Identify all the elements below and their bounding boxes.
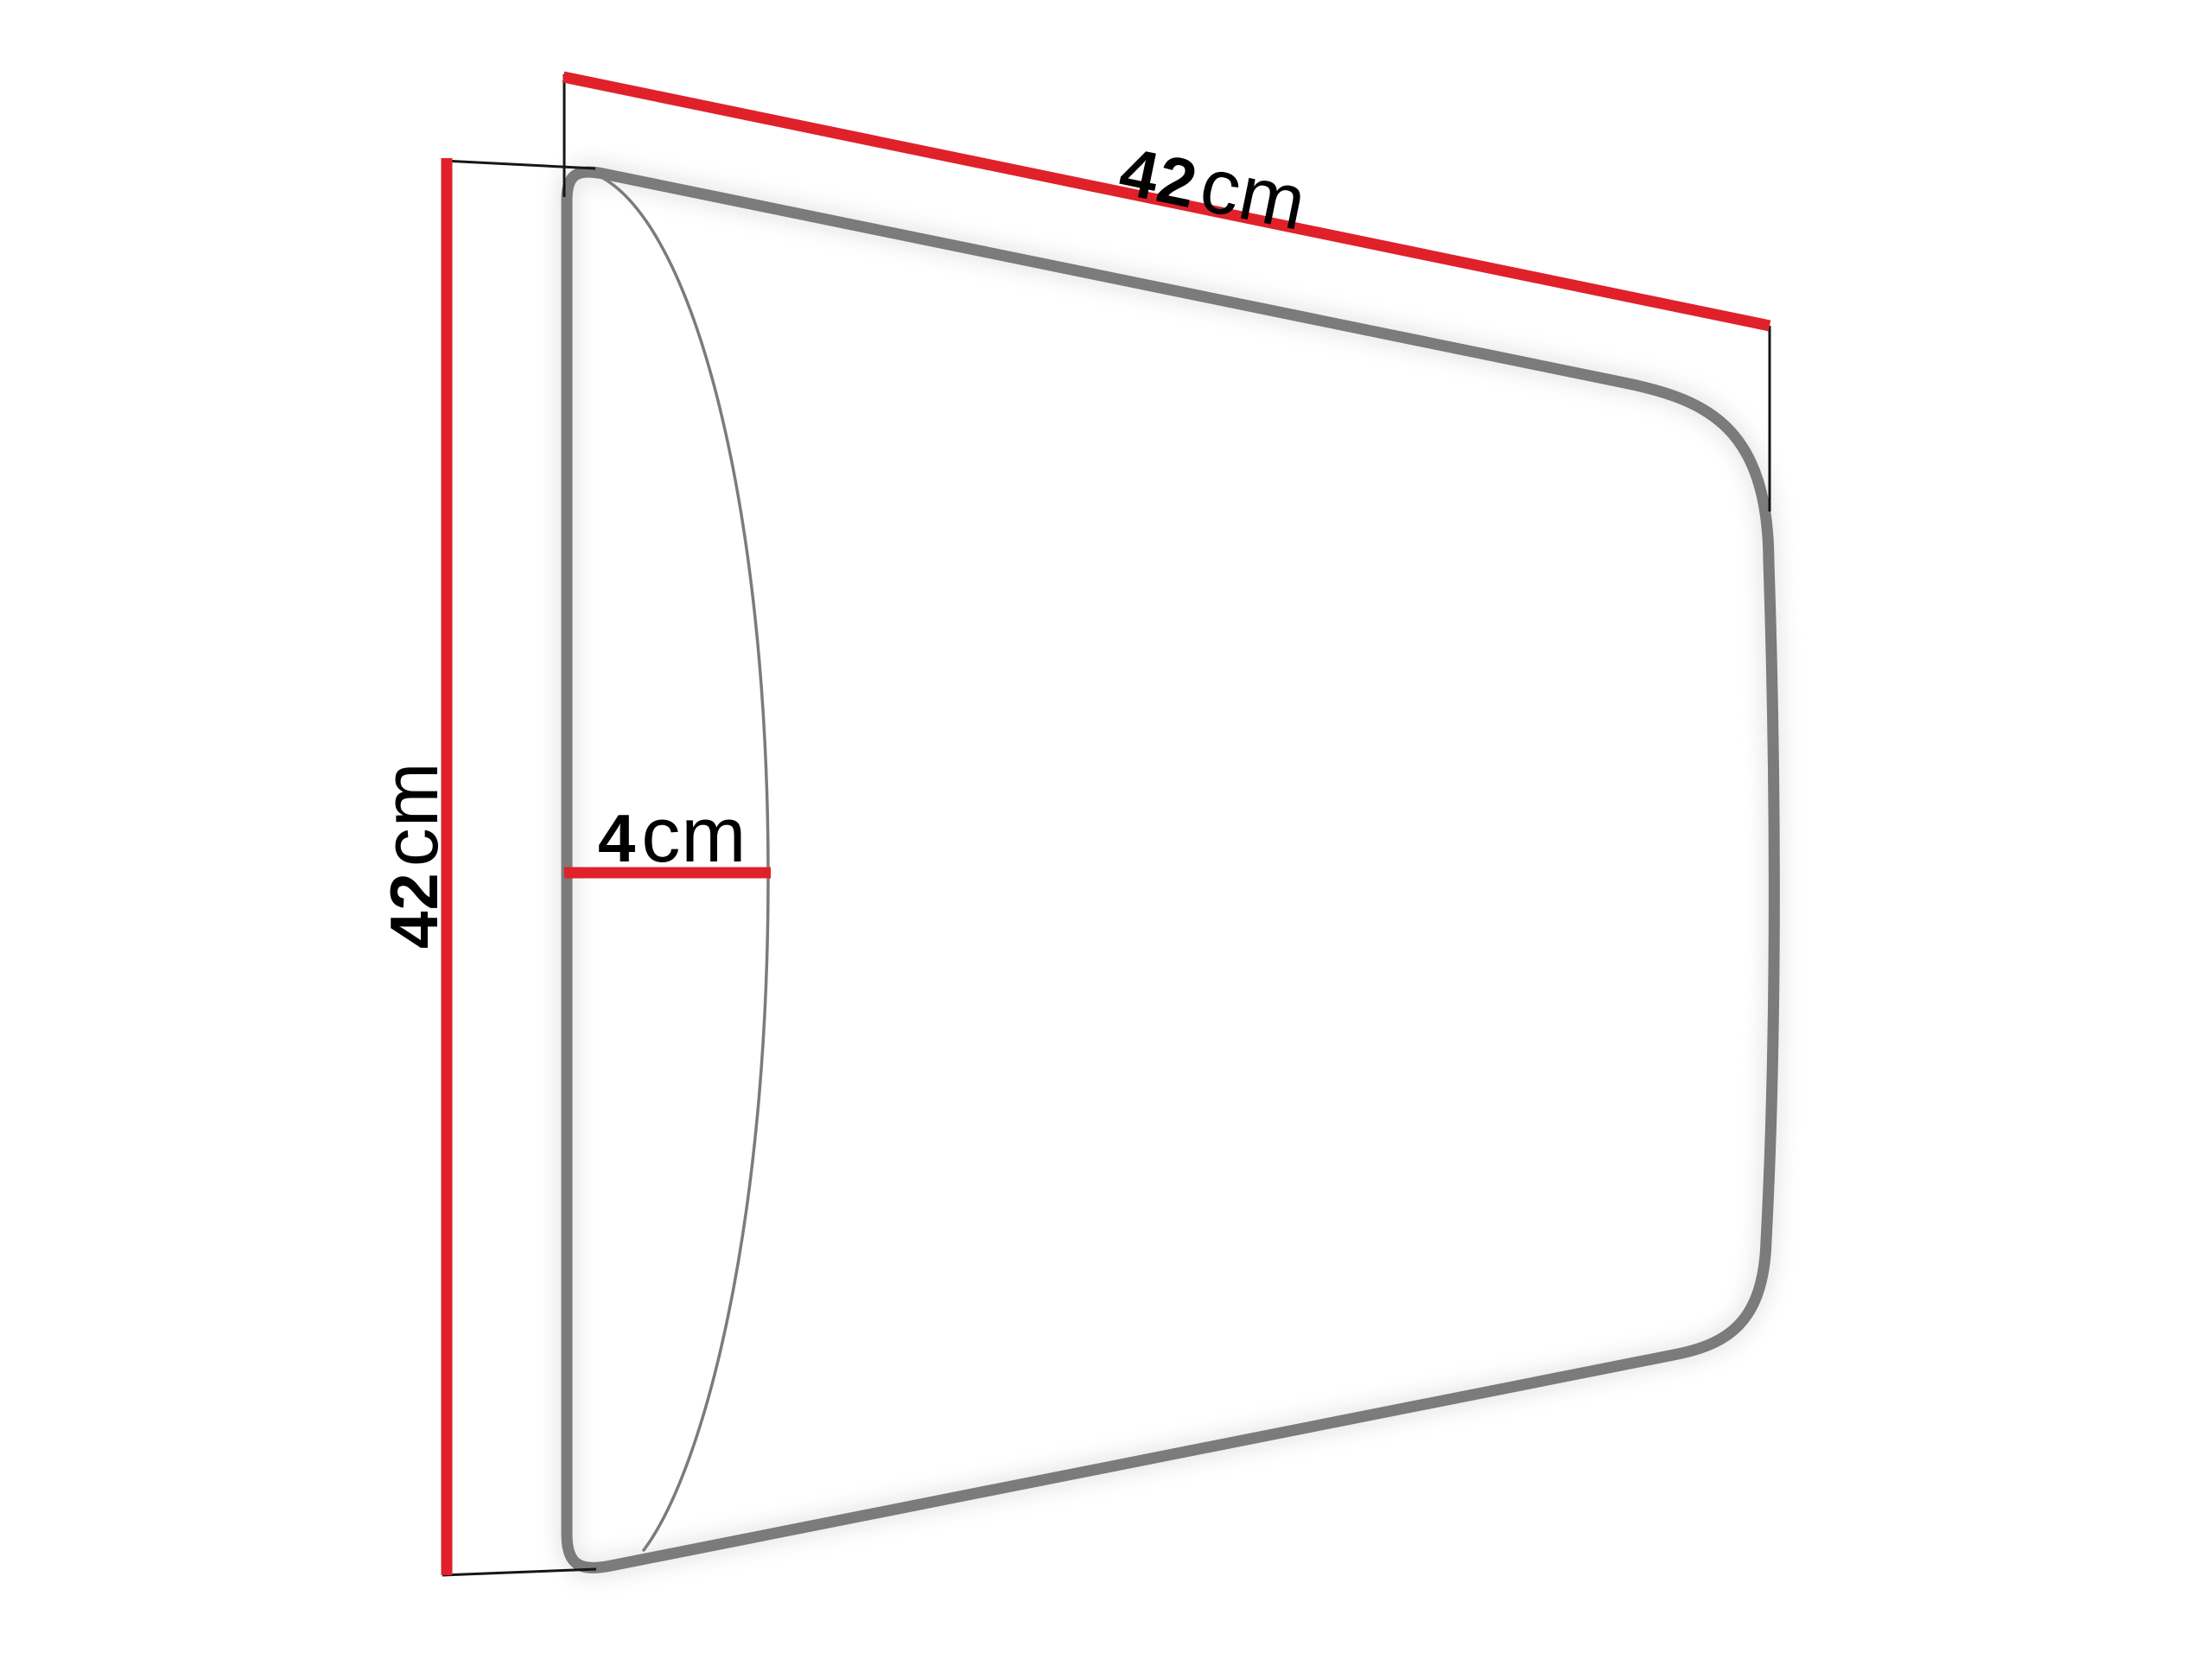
width-dimension-label: 42cm [1113, 125, 1313, 248]
depth-dimension-label: 4cm [598, 792, 747, 879]
depth-value: 4 [598, 800, 636, 876]
width-value: 42 [1114, 132, 1205, 222]
diagram-stage: 42cm 42cm 4cm [0, 0, 2212, 1659]
height-dimension-label: 42cm [368, 761, 454, 949]
panel-dimension-diagram: 42cm 42cm 4cm [0, 0, 2212, 1659]
depth-unit: cm [641, 792, 747, 879]
height-value: 42 [376, 872, 452, 949]
height-unit: cm [368, 761, 454, 867]
width-unit: cm [1193, 142, 1314, 247]
